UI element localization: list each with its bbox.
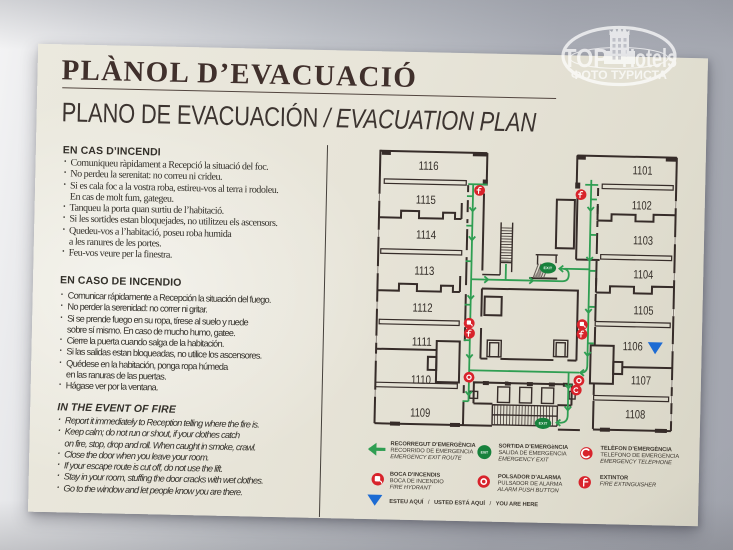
svg-text:FIRE EXTINGUISHER: FIRE EXTINGUISHER xyxy=(600,481,656,488)
svg-text:1102: 1102 xyxy=(632,198,653,212)
svg-text:1101: 1101 xyxy=(632,163,653,177)
svg-text:1113: 1113 xyxy=(414,264,435,278)
svg-text:1112: 1112 xyxy=(412,300,433,314)
svg-text:1103: 1103 xyxy=(633,233,654,247)
svg-text:1104: 1104 xyxy=(633,267,654,281)
svg-text:1108: 1108 xyxy=(625,407,646,421)
svg-text:1109: 1109 xyxy=(410,405,431,419)
svg-text:EMERGENCY EXIT: EMERGENCY EXIT xyxy=(498,456,549,463)
svg-text:1116: 1116 xyxy=(418,159,439,173)
svg-text:1107: 1107 xyxy=(631,373,652,387)
svg-text:EXIT: EXIT xyxy=(543,266,552,270)
svg-text:EMERGENCY TELEPHONE: EMERGENCY TELEPHONE xyxy=(600,459,672,467)
svg-text:1114: 1114 xyxy=(416,228,437,242)
svg-text:1115: 1115 xyxy=(416,193,437,207)
svg-text:1111: 1111 xyxy=(412,334,433,348)
svg-text:EMERGENCY EXIT ROUTE: EMERGENCY EXIT ROUTE xyxy=(390,454,462,462)
svg-text:1110: 1110 xyxy=(411,372,432,386)
svg-text:ФОТО ТУРИСТА: ФОТО ТУРИСТА xyxy=(571,68,667,82)
svg-text:ESTEU AQUÍ / USTED ESTÁ AQ: ESTEU AQUÍ / USTED ESTÁ AQUÍ / YOU ARE H… xyxy=(389,497,538,508)
svg-text:1105: 1105 xyxy=(633,303,654,317)
svg-text:FIRE HYDRANT: FIRE HYDRANT xyxy=(390,485,432,492)
svg-text:EXIT: EXIT xyxy=(539,422,548,426)
svg-text:1106: 1106 xyxy=(623,339,644,353)
svg-text:EXIT: EXIT xyxy=(481,450,490,454)
svg-text:ALARM PUSH BUTTON: ALARM PUSH BUTTON xyxy=(496,487,559,494)
